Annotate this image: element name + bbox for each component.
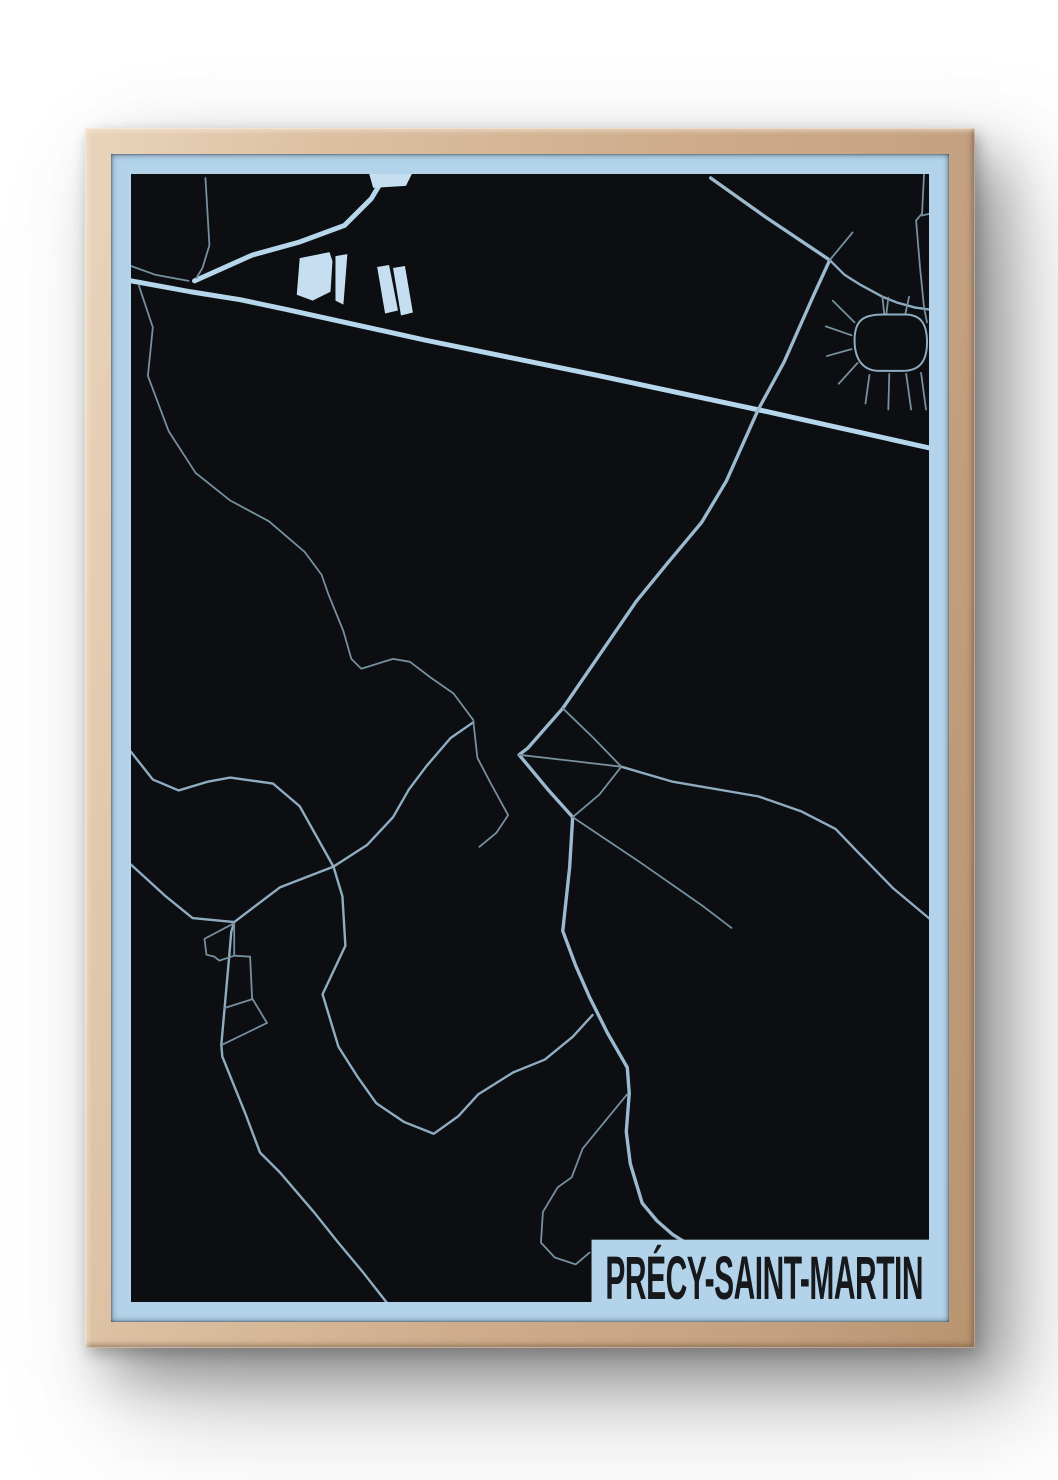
road [222,1023,267,1045]
building-footprint [369,174,412,188]
road [830,260,929,309]
road [833,301,855,323]
road [519,755,621,767]
product-photo-scene: PRÉCY-SAINT-MARTIN [0,0,1058,1480]
road [865,375,869,404]
road [827,349,852,356]
road [197,178,210,278]
road [906,374,911,410]
road [886,298,888,315]
road [916,174,927,322]
road [830,232,853,260]
roads-major [131,174,929,448]
road [195,174,387,281]
map-poster: PRÉCY-SAINT-MARTIN [131,174,929,1302]
building-footprint [335,254,347,304]
city-map-graphic: PRÉCY-SAINT-MARTIN [131,174,929,1302]
road [573,767,622,817]
roads-minor [131,174,929,1264]
road [139,286,473,720]
road [473,722,508,847]
poster-matte-border: PRÉCY-SAINT-MARTIN [111,154,949,1322]
road [234,956,250,957]
road [250,957,267,1023]
road [224,999,252,1008]
road [888,374,889,410]
building-footprint [297,252,333,300]
poster-title: PRÉCY-SAINT-MARTIN [605,1244,923,1302]
road [882,297,884,315]
road [563,178,830,708]
road [826,326,852,335]
road [131,722,473,922]
road [839,363,858,384]
cul-de-sac-spokes [826,297,926,410]
road [131,266,189,281]
road [131,752,593,1134]
road [922,214,929,216]
roads-small [131,260,929,1302]
road [541,1094,627,1264]
buildings [297,174,413,315]
road [921,373,926,410]
cul-de-sac-loop [855,315,927,371]
road [563,708,622,766]
road [573,817,732,928]
road [221,922,387,1302]
road [621,767,929,919]
poster-frame: PRÉCY-SAINT-MARTIN [85,128,975,1348]
